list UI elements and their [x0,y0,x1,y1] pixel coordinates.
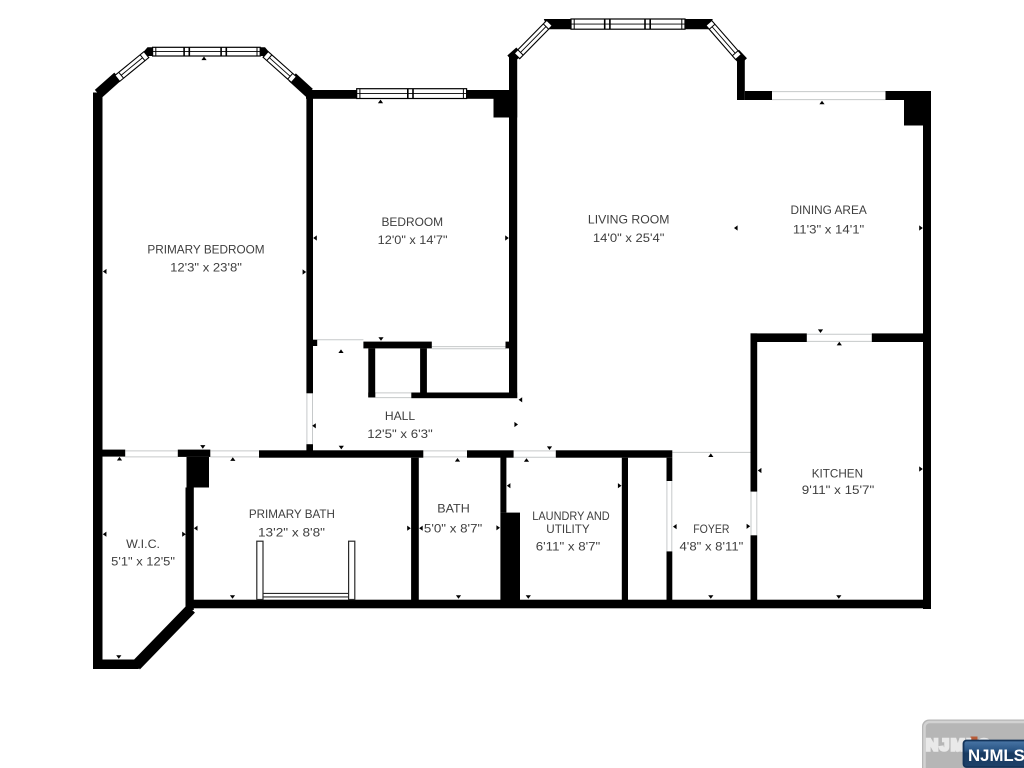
svg-text:UTILITY: UTILITY [546,522,589,536]
svg-text:PRIMARY BEDROOM: PRIMARY BEDROOM [147,243,264,257]
svg-text:12'3" x 23'8": 12'3" x 23'8" [170,261,242,275]
svg-text:HALL: HALL [385,409,416,423]
svg-text:13'2" x 8'8": 13'2" x 8'8" [258,526,325,540]
svg-text:PRIMARY BATH: PRIMARY BATH [249,507,335,521]
svg-text:4'8" x 8'11": 4'8" x 8'11" [680,539,744,553]
svg-text:DINING AREA: DINING AREA [790,203,866,217]
svg-text:W.I.C.: W.I.C. [126,537,160,551]
svg-text:6'11" x 8'7": 6'11" x 8'7" [536,539,601,553]
svg-text:11'3" x 14'1": 11'3" x 14'1" [793,222,864,236]
svg-text:BEDROOM: BEDROOM [381,215,443,229]
svg-text:5'0" x 8'7": 5'0" x 8'7" [424,522,482,536]
svg-text:BATH: BATH [437,501,470,515]
svg-text:FOYER: FOYER [693,522,730,536]
svg-text:5'1" x 12'5": 5'1" x 12'5" [111,554,175,568]
svg-text:12'0" x 14'7": 12'0" x 14'7" [378,233,448,247]
svg-text:12'5" x 6'3": 12'5" x 6'3" [367,427,433,441]
svg-text:9'11" x 15'7": 9'11" x 15'7" [802,483,875,497]
svg-text:14'0" x 25'4": 14'0" x 25'4" [593,231,665,245]
svg-text:NJMLS: NJMLS [968,746,1024,765]
svg-text:KITCHEN: KITCHEN [812,466,863,480]
svg-text:LIVING ROOM: LIVING ROOM [588,213,670,227]
